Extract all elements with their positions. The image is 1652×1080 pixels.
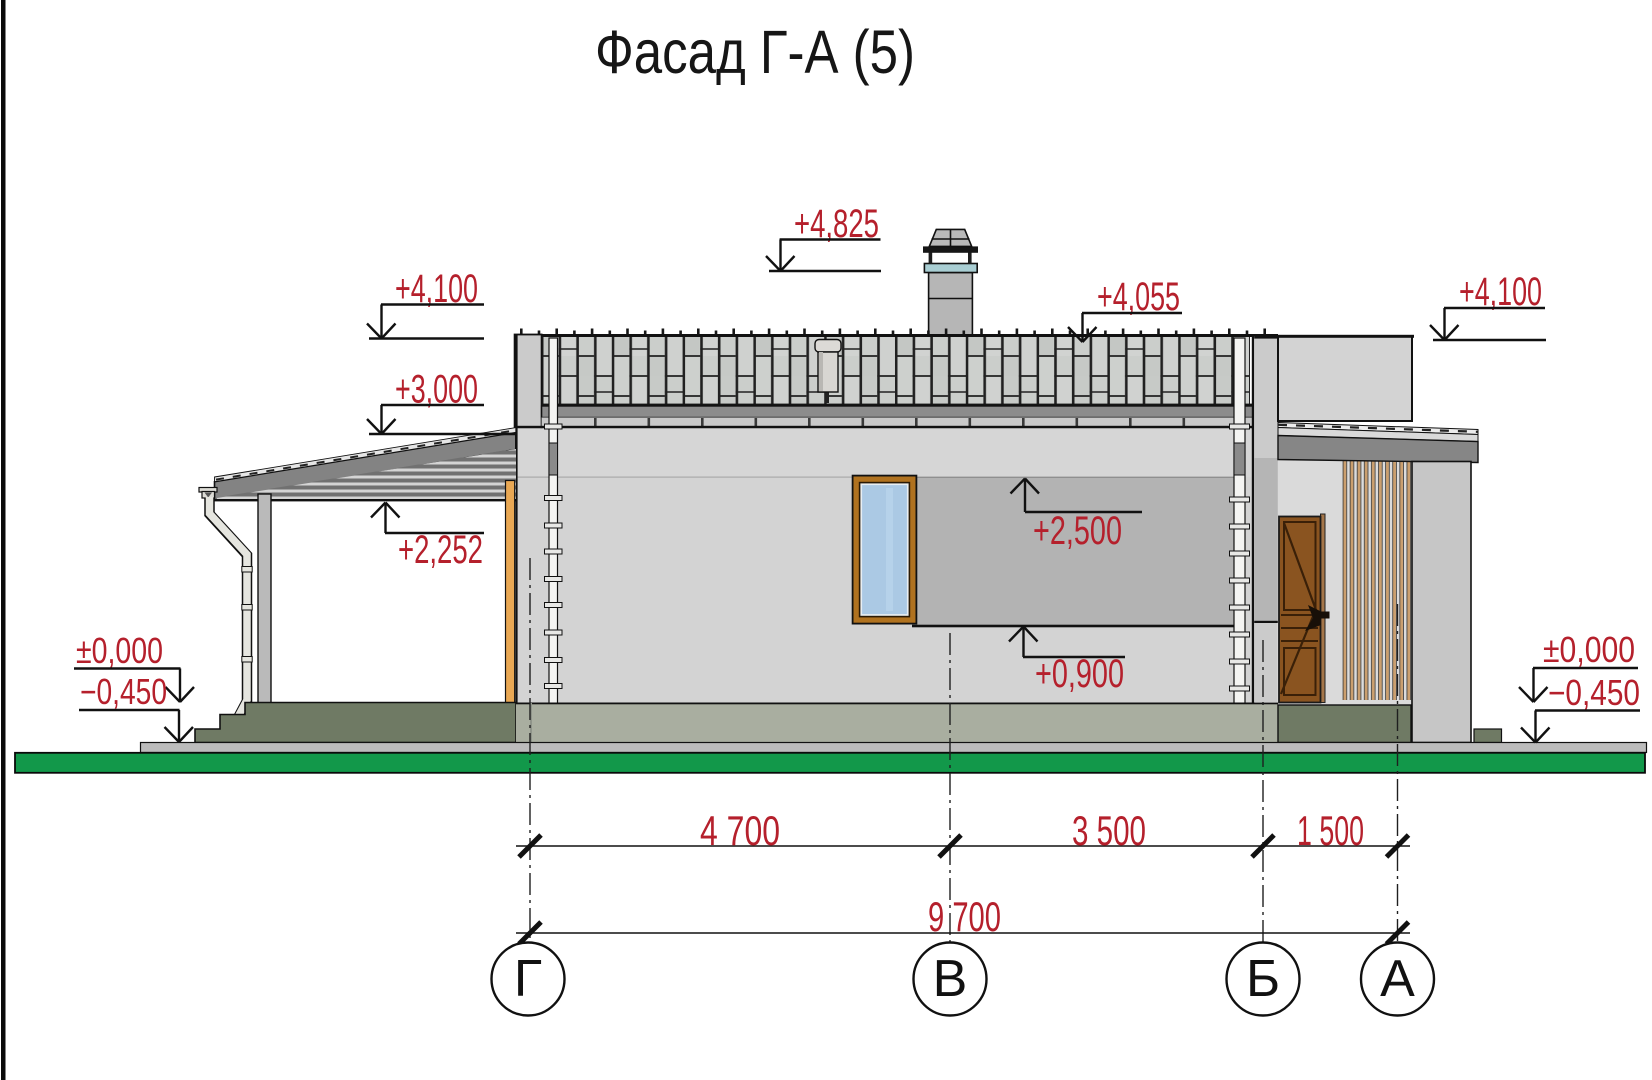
svg-text:Б: Б bbox=[1246, 950, 1280, 1008]
svg-text:±0,000: ±0,000 bbox=[76, 630, 163, 671]
svg-text:−0,450: −0,450 bbox=[80, 671, 167, 712]
svg-text:−0,450: −0,450 bbox=[1548, 672, 1640, 713]
svg-text:Фасад Г-А (5): Фасад Г-А (5) bbox=[595, 18, 915, 86]
svg-text:В: В bbox=[933, 950, 968, 1008]
svg-text:Г: Г bbox=[514, 950, 542, 1008]
svg-text:+2,252: +2,252 bbox=[398, 528, 483, 572]
svg-text:3 500: 3 500 bbox=[1072, 807, 1146, 854]
svg-text:1 500: 1 500 bbox=[1297, 807, 1364, 854]
svg-text:±0,000: ±0,000 bbox=[1543, 629, 1635, 670]
svg-text:9 700: 9 700 bbox=[928, 893, 1001, 940]
svg-text:А: А bbox=[1380, 950, 1415, 1008]
svg-text:+0,900: +0,900 bbox=[1035, 652, 1124, 696]
svg-text:+2,500: +2,500 bbox=[1033, 509, 1122, 553]
svg-text:4 700: 4 700 bbox=[700, 807, 780, 854]
